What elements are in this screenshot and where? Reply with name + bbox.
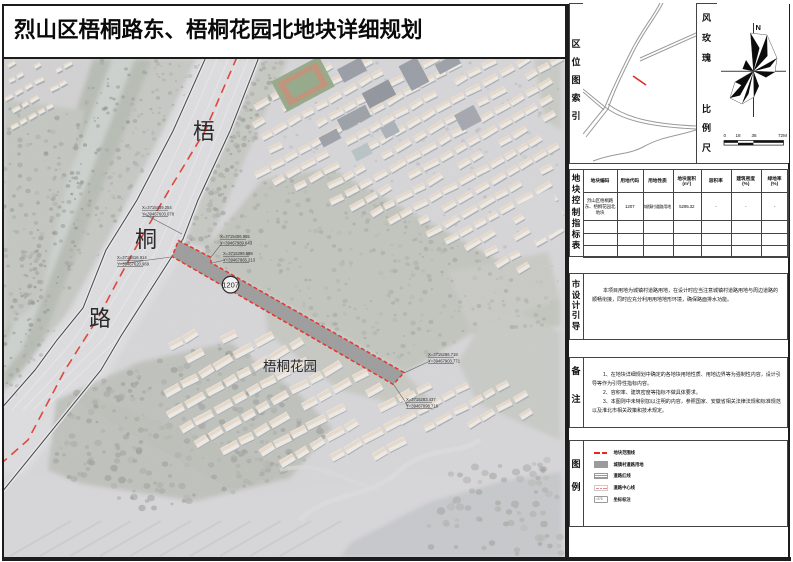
svg-text:36: 36: [752, 133, 758, 138]
svg-text:18: 18: [736, 133, 742, 138]
svg-text:0: 0: [724, 133, 727, 138]
svg-text:N: N: [756, 23, 761, 32]
svg-text:72M: 72M: [778, 133, 787, 138]
